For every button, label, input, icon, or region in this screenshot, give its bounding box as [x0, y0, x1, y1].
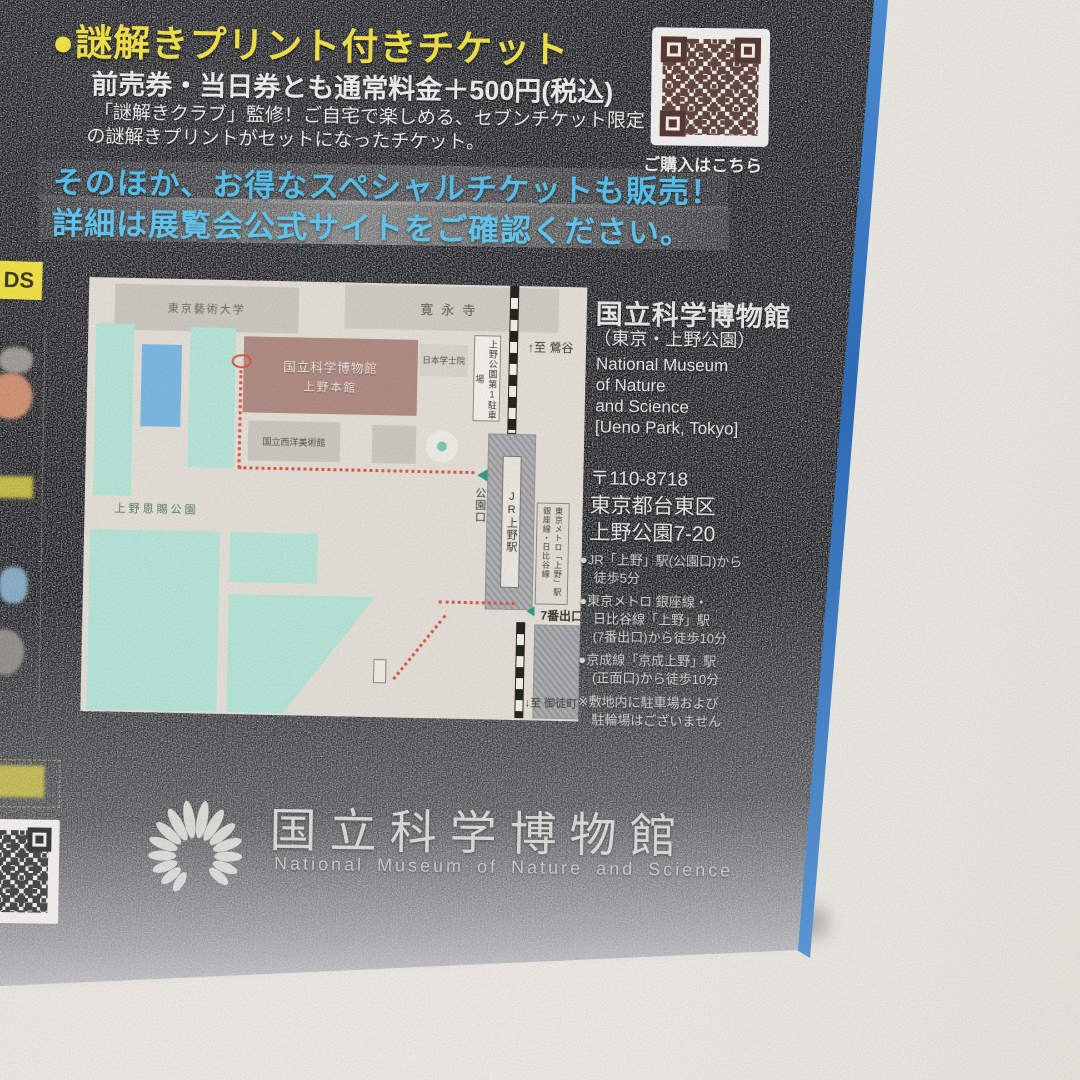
map-museum-building: 国立科学博物館 上野本館: [243, 336, 419, 416]
access-item-line: (7番出口)から徒歩10分: [579, 628, 742, 649]
map-label-metro-station: 東京メトロ「上野」駅: [552, 507, 565, 604]
map-park-block: [229, 532, 318, 584]
sidebar-image-fragment: [0, 567, 28, 603]
venue-name-en-line: [Ueno Park, Tokyo]: [595, 417, 739, 439]
map-label-to-okachimachi: ↓至 御徒町: [524, 694, 577, 711]
access-list: ●JR「上野」駅(公園口)から 徒歩5分 ●東京メトロ 銀座線・ 日比谷線「上野…: [577, 551, 742, 732]
map-route-start-marker: [232, 354, 252, 368]
map-park-block: [187, 327, 236, 468]
goods-tab-fragment: DS: [0, 260, 43, 300]
qr-finder-icon: [661, 36, 687, 62]
map-label-parking: 上野公園第1駐車場: [472, 335, 501, 422]
bottom-qr-code: [0, 818, 60, 924]
sidebar-image-fragment: [0, 629, 25, 676]
flyer: ●謎解きプリント付きチケット 前売券・当日券とも通常料金＋500円(税込) 「謎…: [0, 0, 900, 1000]
purchase-qr-code: [650, 27, 770, 147]
map-route-line: [237, 370, 242, 468]
map-building-block: [372, 425, 417, 464]
map-label-art-university: 東京藝術大学: [114, 284, 299, 334]
map-entrance-arrow-icon: [526, 606, 534, 616]
map-museum-name-sub: 上野本館: [303, 379, 357, 396]
qr-finder-icon: [735, 37, 761, 63]
qr-finder-icon: [27, 827, 51, 851]
map-park-block: [93, 323, 135, 496]
museum-logo-fan-icon: [145, 767, 247, 897]
map-museum-name: 国立科学博物館: [283, 356, 378, 377]
access-map: 東京藝術大学 寛永寺 国立科学博物館 上野本館 日本学士院 国立西洋美術館: [80, 277, 587, 721]
map-label-to-uguisudani: ↑至 鶯谷: [528, 338, 574, 356]
photo-background: ●謎解きプリント付きチケット 前売券・当日券とも通常料金＋500円(税込) 「謎…: [0, 0, 1080, 1080]
map-metro-station-label-box: 東京メトロ「上野」駅 銀座線・日比谷線: [535, 502, 570, 605]
access-item-line: 徒歩5分: [579, 569, 742, 590]
postal-code: 〒110-8718: [590, 463, 688, 492]
map-park-block: [226, 594, 416, 716]
venue-name-en-line: National Museum: [596, 354, 729, 376]
sidebar-image-fragment: [0, 373, 33, 420]
map-park-block: [86, 529, 220, 712]
access-item-line: (正面口)から徒歩10分: [578, 669, 741, 690]
venue-name-en-line: of Nature: [595, 375, 665, 396]
venue-name-en-line: and Science: [595, 396, 689, 417]
map-route-line: [439, 600, 515, 605]
ticket-desc-line-2: の謎解きプリントがセットになったチケット。: [86, 121, 485, 154]
map-label-jr-ueno-station: JR上野駅: [500, 456, 522, 588]
parking-note-line: 駐輪場はございません: [577, 711, 740, 732]
map-roundabout-center: [437, 441, 447, 451]
map-small-building: [373, 659, 386, 683]
map-route-line: [392, 615, 446, 680]
promo-line-2: 詳細は展覧会公式サイトをご確認ください。: [52, 198, 693, 253]
sidebar-text-fragment: [0, 476, 33, 499]
map-label-ueno-park: 上野恩賜公園: [114, 500, 198, 518]
map-label-gakushiin: 日本学士院: [419, 344, 468, 377]
map-label-exit7: 7番出口: [540, 607, 583, 625]
map-label-park-exit: 公園口: [471, 487, 488, 557]
sidebar-text-fragment: [0, 765, 45, 798]
map-roundabout: [426, 430, 459, 463]
address-line-2: 上野公園7-20: [589, 516, 715, 548]
map-label-metro-lines: 銀座線・日比谷線: [540, 507, 553, 604]
map-label-kaneiji: 寛永寺: [344, 284, 559, 332]
column-divider: [38, 330, 45, 710]
map-route-line: [238, 466, 474, 474]
venue-name-sub: （東京・上野公園）: [593, 324, 755, 353]
qr-finder-icon: [660, 110, 686, 136]
sidebar-image-fragment: [0, 347, 33, 374]
flyer-content: ●謎解きプリント付きチケット 前売券・当日券とも通常料金＋500円(税込) 「謎…: [0, 0, 901, 1013]
map-pond: [140, 344, 182, 427]
map-jr-rail-line: [507, 286, 519, 434]
map-entrance-arrow-icon: [477, 469, 487, 481]
map-label-seiyo-museum: 国立西洋美術館: [248, 420, 341, 462]
